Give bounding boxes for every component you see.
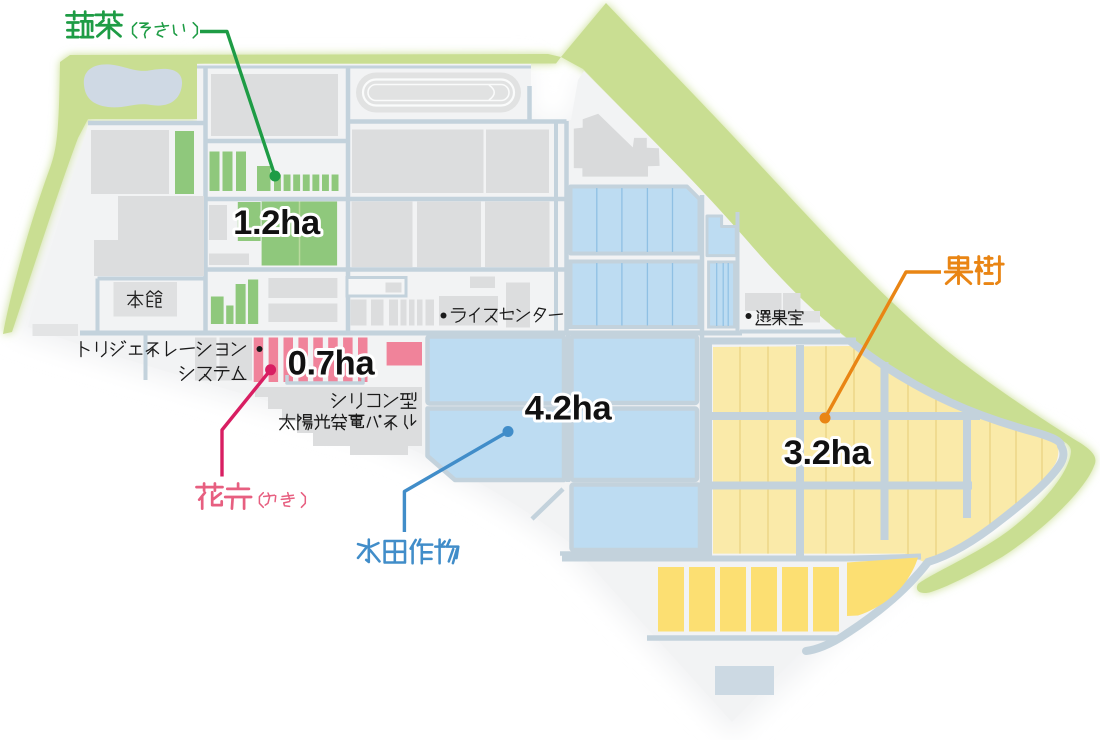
svg-text:0.7ha: 0.7ha [288,345,376,383]
svg-text:4.2ha: 4.2ha [525,390,613,428]
svg-text:1.2ha: 1.2ha [233,204,321,242]
svg-text:3.2ha: 3.2ha [784,434,872,472]
